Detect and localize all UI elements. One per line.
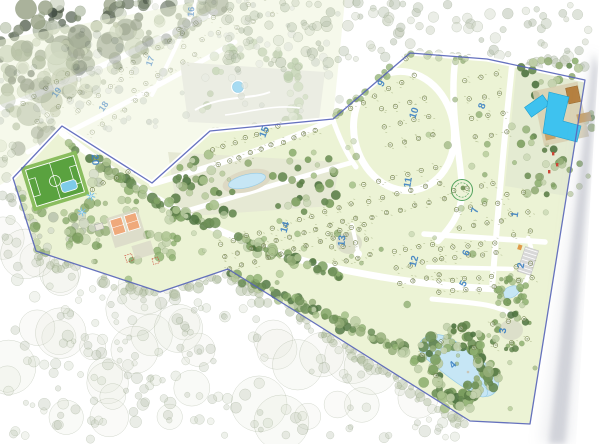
tree-icon [30, 403, 35, 408]
tree-icon [225, 15, 233, 23]
tree-icon [525, 173, 531, 179]
tree-icon [2, 234, 9, 241]
tree-icon [141, 398, 150, 407]
tree-icon [147, 375, 154, 382]
tree-icon [528, 66, 536, 74]
tree-icon [564, 17, 569, 22]
tree-icon [12, 238, 21, 247]
tree-icon [472, 382, 480, 390]
tree-icon [2, 109, 10, 117]
tree-icon [96, 238, 100, 242]
tree-icon [325, 155, 332, 162]
tree-icon [466, 404, 475, 413]
tree-icon [115, 85, 124, 94]
tree-icon [497, 294, 502, 299]
tree-icon [206, 344, 216, 354]
tree-icon [378, 47, 385, 54]
tree-icon [425, 331, 436, 342]
tree-icon [23, 357, 31, 365]
tree-icon [572, 58, 579, 65]
tree-icon [64, 229, 71, 236]
tree-icon [30, 222, 40, 232]
tree-icon [366, 41, 374, 49]
tree-icon [276, 47, 281, 52]
tree-icon [541, 180, 547, 186]
tree-icon [51, 358, 61, 368]
tree-icon [432, 236, 436, 240]
tree-icon [474, 375, 480, 381]
tree-icon [162, 248, 168, 254]
tree-icon [216, 190, 222, 196]
tree-icon [342, 20, 353, 31]
tree-icon [93, 49, 102, 58]
tree-icon [335, 346, 343, 354]
tree-icon [131, 372, 142, 383]
tree-icon [575, 46, 584, 55]
tree-icon [91, 374, 98, 381]
tree-icon [350, 326, 357, 333]
tree-icon [211, 358, 217, 364]
tree-icon [197, 349, 202, 354]
tree-icon [221, 432, 227, 438]
tree-icon [115, 0, 122, 7]
tree-icon [326, 431, 334, 439]
tree-icon [33, 103, 42, 112]
tree-icon [390, 38, 397, 45]
tree-icon [111, 284, 117, 290]
tree-icon [135, 392, 142, 399]
tree-icon [524, 20, 532, 28]
tree-icon [584, 26, 592, 34]
tree-icon [38, 398, 50, 410]
tree-icon [46, 262, 54, 270]
tree-icon [409, 231, 415, 237]
tree-icon [309, 54, 315, 60]
tree-icon [133, 1, 139, 7]
tree-icon [426, 26, 435, 35]
tree-icon [118, 196, 126, 204]
tree-icon [112, 312, 119, 319]
tree-icon [176, 182, 182, 188]
tree-icon [385, 432, 392, 439]
tree-icon [306, 1, 312, 7]
tree-icon [191, 307, 197, 313]
tree-icon [183, 214, 188, 219]
tree-icon [376, 332, 386, 342]
tree-icon [71, 405, 80, 414]
tree-icon [500, 26, 506, 32]
tree-icon [220, 171, 226, 177]
tree-icon [195, 415, 205, 425]
tree-icon [441, 347, 448, 354]
tree-icon [276, 57, 287, 68]
tree-icon [153, 118, 159, 124]
tree-icon [353, 153, 360, 160]
tree-icon [485, 9, 496, 20]
tree-icon [115, 340, 120, 345]
tree-icon [416, 22, 424, 30]
tree-icon [92, 85, 101, 94]
tree-icon [541, 42, 547, 48]
tree-icon [414, 420, 420, 426]
tree-icon [284, 71, 294, 81]
tree-icon [140, 385, 149, 394]
tree-icon [183, 174, 188, 179]
tree-icon [80, 28, 85, 33]
tree-icon [237, 46, 243, 52]
tree-icon [183, 112, 190, 119]
tree-icon [303, 199, 311, 207]
tree-icon [295, 73, 302, 80]
tree-icon [363, 359, 373, 369]
tree-icon [225, 35, 232, 42]
tree-icon [369, 335, 376, 342]
tree-icon [212, 0, 217, 5]
tree-icon [103, 201, 108, 206]
tree-icon [174, 235, 181, 242]
tree-icon [343, 374, 352, 383]
tree-icon [484, 141, 490, 147]
tree-icon [67, 340, 74, 347]
tree-icon [572, 9, 582, 19]
tree-icon [170, 291, 180, 301]
tree-icon [4, 386, 14, 396]
tree-icon [287, 62, 294, 69]
tree-icon [284, 202, 291, 209]
tree-icon [303, 94, 308, 99]
tree-icon [455, 423, 460, 428]
tree-icon [450, 432, 459, 441]
tree-icon [297, 424, 308, 435]
tree-icon [61, 305, 69, 313]
tree-icon [210, 52, 219, 61]
tree-icon [196, 393, 203, 400]
tree-icon [64, 361, 73, 370]
tree-icon [324, 391, 351, 418]
tree-icon [353, 0, 364, 8]
zone-label-20: 20 [89, 154, 101, 166]
tree-icon [168, 43, 174, 49]
tree-icon [504, 280, 508, 284]
tree-icon [419, 425, 431, 437]
tree-icon [250, 2, 256, 8]
tree-icon [290, 6, 295, 11]
tree-icon [287, 23, 297, 33]
tree-icon [463, 381, 472, 390]
tree-icon [299, 108, 304, 113]
tree-icon [316, 41, 321, 46]
tree-icon [84, 198, 95, 209]
road [428, 267, 512, 269]
tree-icon [479, 37, 484, 42]
tree-icon [138, 330, 149, 341]
tree-icon [529, 58, 538, 67]
tree-icon [418, 342, 424, 348]
tree-icon [124, 372, 131, 379]
tree-icon [347, 405, 353, 411]
tree-icon [517, 140, 525, 148]
tree-icon [186, 189, 193, 196]
tree-icon [224, 404, 230, 410]
tree-icon [139, 185, 148, 194]
tree-icon [326, 8, 335, 17]
tree-icon [208, 31, 214, 37]
tree-icon [203, 280, 208, 285]
tree-icon [97, 334, 107, 344]
tree-icon [89, 169, 99, 179]
tree-icon [182, 357, 190, 365]
tree-icon [199, 176, 208, 185]
tree-icon [551, 184, 557, 190]
tree-icon [452, 97, 457, 102]
tree-icon [410, 358, 418, 366]
tree-icon [108, 301, 115, 308]
tree-icon [287, 90, 294, 97]
tree-icon [379, 247, 384, 252]
tree-icon [324, 71, 333, 80]
tree-icon [419, 377, 429, 387]
tree-icon [346, 425, 353, 432]
tree-icon [273, 35, 284, 46]
tree-icon [20, 341, 29, 350]
tree-icon [461, 343, 467, 349]
tree-icon [31, 64, 37, 70]
tree-icon [512, 345, 519, 352]
tree-icon [238, 93, 245, 100]
tree-icon [443, 434, 449, 440]
tree-icon [114, 320, 119, 325]
tree-icon [428, 12, 439, 23]
tree-icon [21, 432, 29, 440]
tree-icon [327, 336, 334, 343]
tree-icon [426, 417, 432, 423]
tree-icon [483, 151, 489, 157]
tree-icon [321, 198, 328, 205]
tree-icon [229, 210, 237, 218]
tree-icon [212, 275, 221, 284]
tree-icon [75, 101, 84, 110]
tree-icon [155, 297, 167, 309]
tree-icon [180, 322, 189, 331]
tree-icon [105, 167, 113, 175]
tree-icon [414, 365, 422, 373]
tree-icon [79, 218, 89, 228]
tree-icon [516, 284, 524, 292]
tree-icon [542, 148, 547, 153]
tree-icon [81, 333, 89, 341]
tree-icon [239, 28, 245, 34]
tree-icon [48, 212, 58, 222]
tree-icon [254, 378, 265, 389]
tree-icon [57, 412, 64, 419]
tree-icon [171, 371, 181, 381]
tree-icon [383, 73, 390, 80]
tree-icon [351, 138, 357, 144]
tree-icon [154, 198, 160, 204]
tree-icon [507, 360, 512, 365]
tree-icon [280, 3, 289, 12]
tree-icon [456, 354, 460, 358]
tree-icon [203, 220, 211, 228]
tree-icon [141, 297, 147, 303]
tree-icon [40, 360, 49, 369]
tree-icon [141, 304, 148, 311]
tree-icon [243, 39, 250, 46]
tree-icon [345, 54, 351, 60]
tree-icon [398, 349, 406, 357]
tree-icon [287, 105, 295, 113]
tree-icon [512, 160, 517, 165]
tree-icon [256, 36, 263, 43]
tree-icon [530, 135, 535, 140]
tree-icon [90, 397, 98, 405]
tree-icon [533, 366, 538, 371]
tree-icon [111, 68, 118, 75]
tree-icon [289, 149, 297, 157]
tree-icon [185, 283, 193, 291]
tree-icon [253, 316, 260, 323]
tree-icon [9, 142, 16, 149]
tree-icon [512, 311, 518, 317]
tree-icon [331, 190, 341, 200]
tree-icon [155, 348, 163, 356]
tree-icon [61, 209, 68, 216]
tree-icon [258, 427, 263, 432]
tree-icon [77, 290, 83, 296]
tree-icon [245, 160, 252, 167]
tree-icon [43, 243, 52, 252]
tree-icon [85, 41, 92, 48]
tree-icon [287, 158, 294, 165]
tree-icon [228, 74, 236, 82]
tree-icon [293, 32, 303, 42]
tree-icon [430, 354, 441, 365]
tree-icon [264, 42, 270, 48]
tree-icon [492, 335, 499, 342]
tree-icon [122, 360, 133, 371]
zone-label-16: 16 [186, 6, 197, 17]
tree-icon [435, 424, 442, 431]
tree-icon [129, 407, 138, 416]
tree-icon [220, 211, 228, 219]
tree-icon [508, 123, 515, 130]
tree-icon [50, 126, 55, 131]
tree-icon [305, 157, 311, 163]
tree-icon [385, 342, 391, 348]
plan-page: 1234567891011121234567891011121234567891… [0, 0, 600, 444]
tree-icon [499, 277, 503, 281]
tree-icon [476, 341, 485, 350]
tree-icon [75, 297, 82, 304]
tree-icon [91, 259, 96, 264]
tree-icon [106, 126, 112, 132]
tree-icon [226, 2, 234, 10]
tree-icon [118, 295, 127, 304]
tree-icon [222, 393, 232, 403]
tree-icon [311, 150, 316, 155]
tree-icon [400, 1, 406, 7]
tree-icon [475, 358, 481, 364]
tree-icon [6, 215, 16, 225]
tree-icon [268, 61, 273, 66]
tree-icon [159, 207, 165, 213]
tree-icon [443, 334, 448, 339]
lounge-icon [548, 170, 550, 173]
tree-icon [466, 391, 471, 396]
tree-icon [94, 200, 101, 207]
tree-icon [100, 418, 107, 425]
tree-icon [550, 146, 558, 154]
tree-icon [329, 315, 338, 324]
tree-icon [213, 230, 222, 239]
tree-icon [349, 254, 354, 259]
tree-icon [37, 234, 42, 239]
tree-icon [392, 344, 398, 350]
tree-icon [535, 173, 542, 180]
tree-icon [298, 411, 307, 420]
tree-icon [147, 230, 155, 238]
tree-icon [11, 274, 23, 286]
tree-icon [544, 191, 550, 197]
tree-icon [487, 333, 491, 337]
tree-icon [362, 403, 371, 412]
tree-icon [155, 252, 165, 262]
tree-icon [308, 307, 312, 311]
tree-icon [323, 57, 334, 68]
tree-icon [312, 21, 321, 30]
tree-icon [242, 101, 248, 107]
tree-icon [14, 70, 20, 76]
tree-icon [96, 69, 101, 74]
tree-icon [500, 312, 506, 318]
tree-icon [451, 323, 456, 328]
tree-icon [210, 218, 221, 229]
tree-icon [505, 51, 511, 57]
tree-icon [544, 57, 552, 65]
tree-icon [117, 347, 122, 352]
tree-icon [240, 3, 248, 11]
tree-icon [29, 291, 40, 302]
tree-icon [117, 358, 122, 363]
tree-icon [424, 52, 432, 60]
tree-icon [2, 155, 8, 161]
tree-icon [490, 33, 501, 44]
tree-icon [222, 314, 228, 320]
tree-icon [6, 194, 14, 202]
tree-icon [92, 319, 99, 326]
tree-icon [86, 435, 94, 443]
tree-icon [191, 231, 196, 236]
tree-icon [254, 297, 264, 307]
tree-icon [407, 17, 414, 24]
tree-icon [123, 339, 128, 344]
tree-icon [341, 312, 349, 320]
tree-icon [482, 172, 487, 177]
tree-icon [194, 299, 202, 307]
tree-icon [270, 287, 275, 292]
tree-icon [263, 56, 269, 62]
tree-icon [313, 312, 320, 319]
tree-icon [132, 185, 139, 192]
tree-icon [292, 0, 300, 7]
tree-icon [469, 163, 476, 170]
tree-icon [470, 332, 476, 338]
tree-icon [92, 241, 100, 249]
tree-icon [294, 231, 300, 237]
site-plan-map: 1234567891011121234567891011121234567891… [0, 0, 600, 444]
tree-icon [519, 302, 525, 308]
tree-icon [185, 392, 190, 397]
